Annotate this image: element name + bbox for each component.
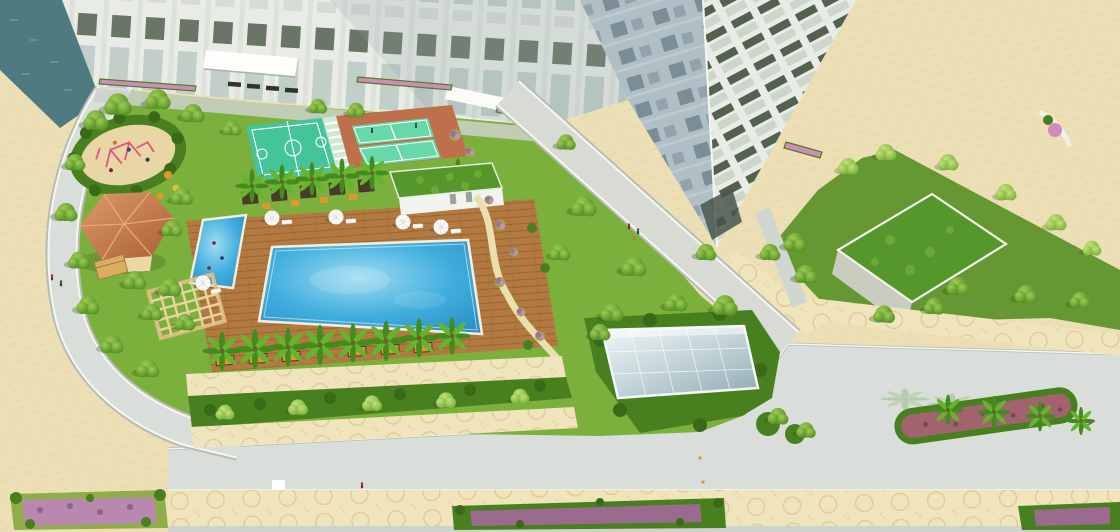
render-canvas: aerial-3d-architectural-render-of-reside… xyxy=(0,0,1120,532)
pedestrian-on-road xyxy=(361,482,363,488)
aerial-render: aerial-3d-architectural-render-of-reside… xyxy=(0,0,1120,532)
hedge-southeast xyxy=(1018,502,1120,530)
main-pool xyxy=(259,240,482,334)
road-marking xyxy=(272,480,285,490)
flower-bed-southwest xyxy=(10,489,168,530)
badminton-player xyxy=(415,123,417,128)
badminton-player xyxy=(371,128,373,133)
glass-canopy xyxy=(602,326,758,398)
